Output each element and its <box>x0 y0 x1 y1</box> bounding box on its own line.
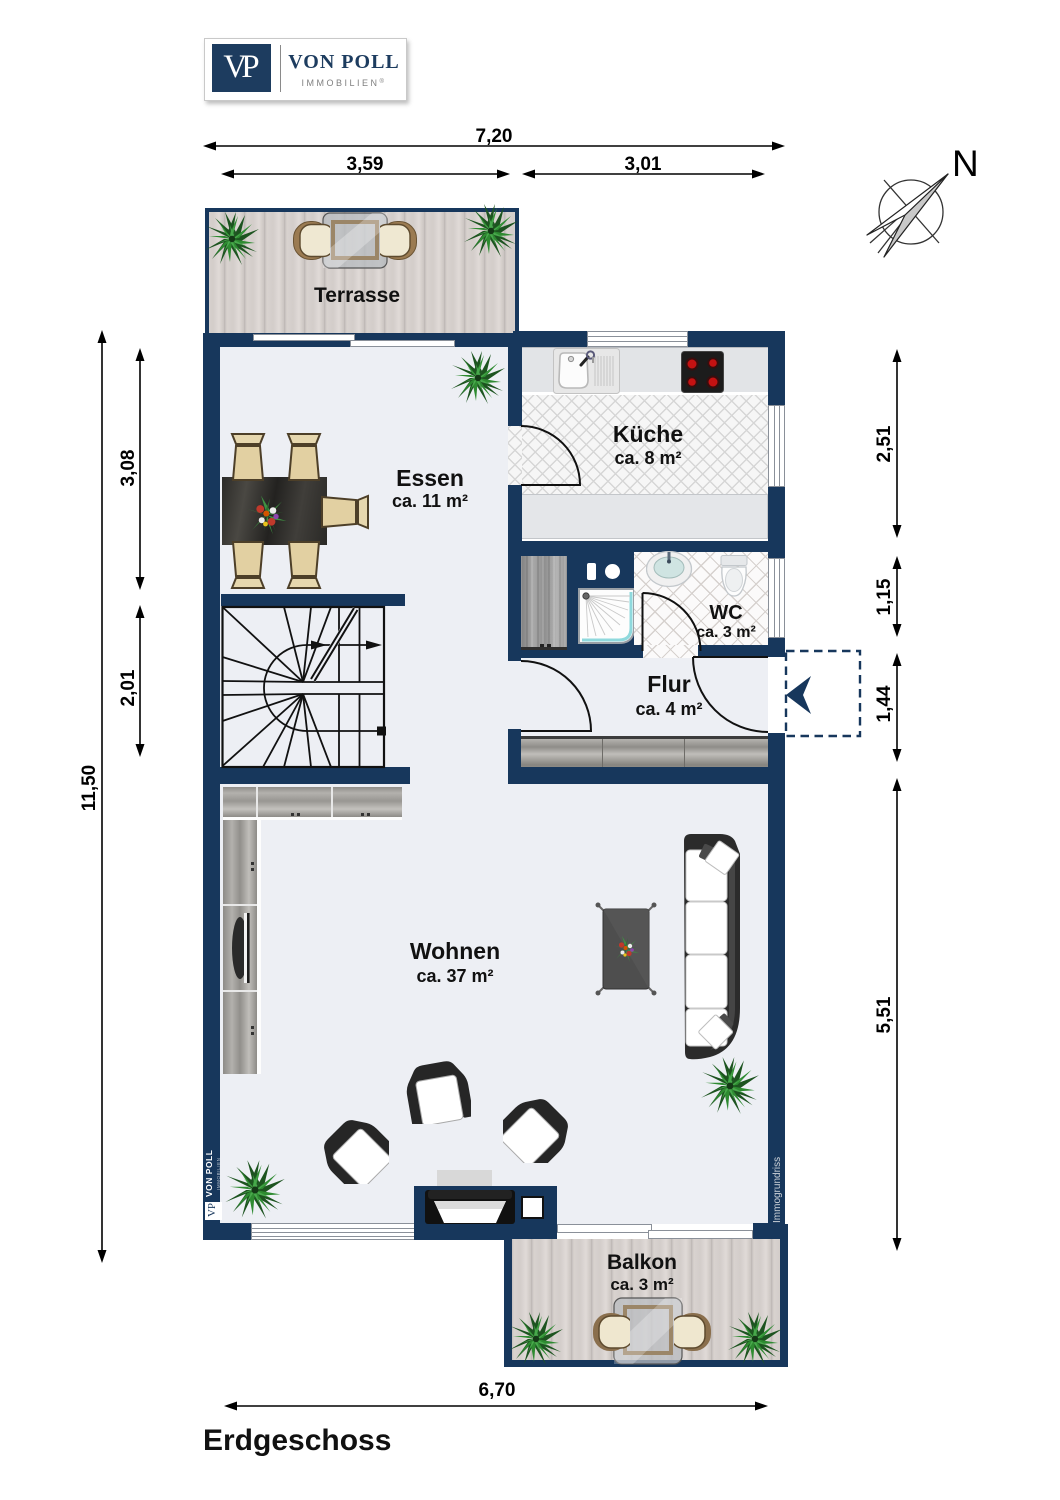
svg-text:N: N <box>952 143 979 184</box>
